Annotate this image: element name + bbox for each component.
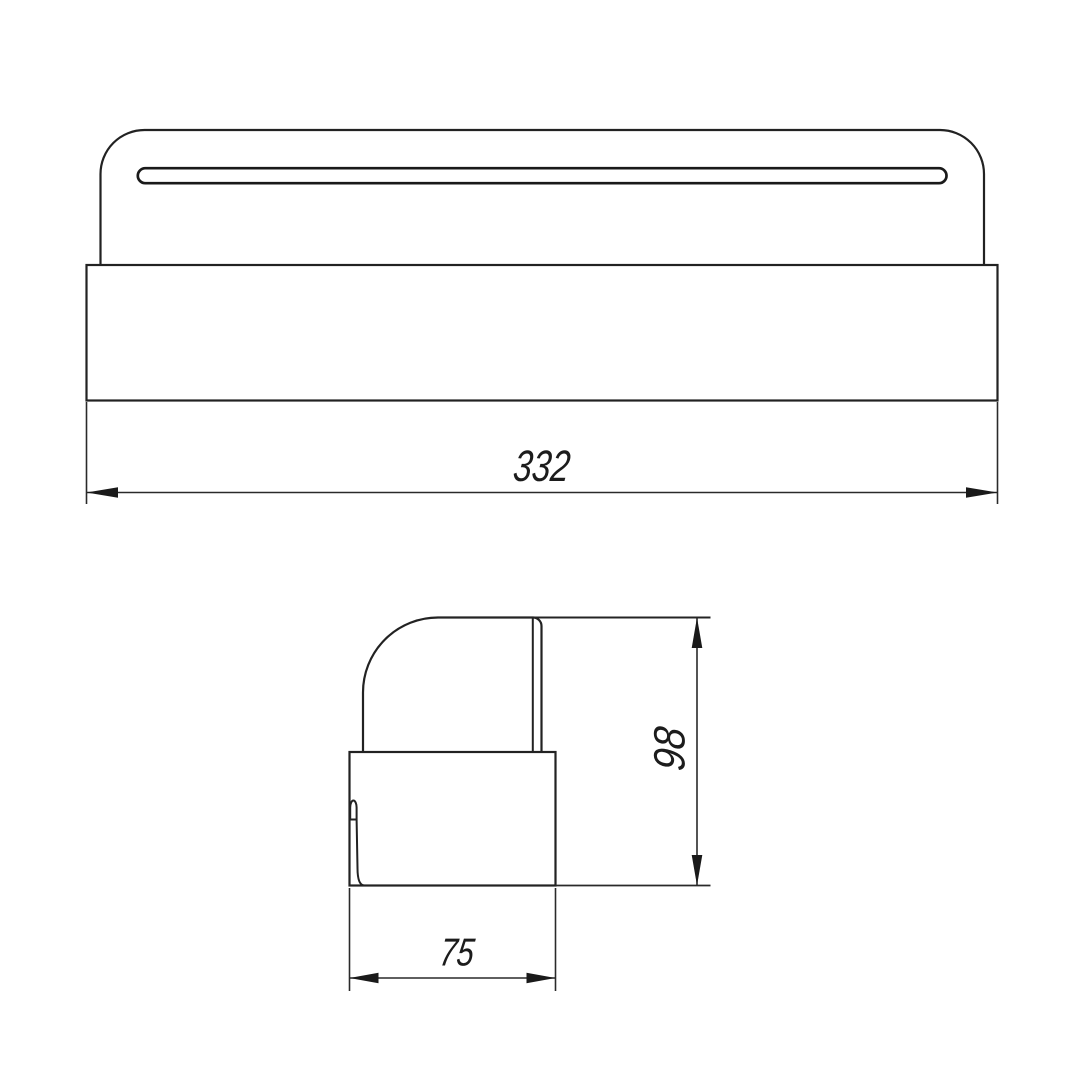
svg-text:75: 75 <box>437 932 476 975</box>
svg-text:98: 98 <box>646 724 695 773</box>
svg-text:332: 332 <box>511 442 573 491</box>
